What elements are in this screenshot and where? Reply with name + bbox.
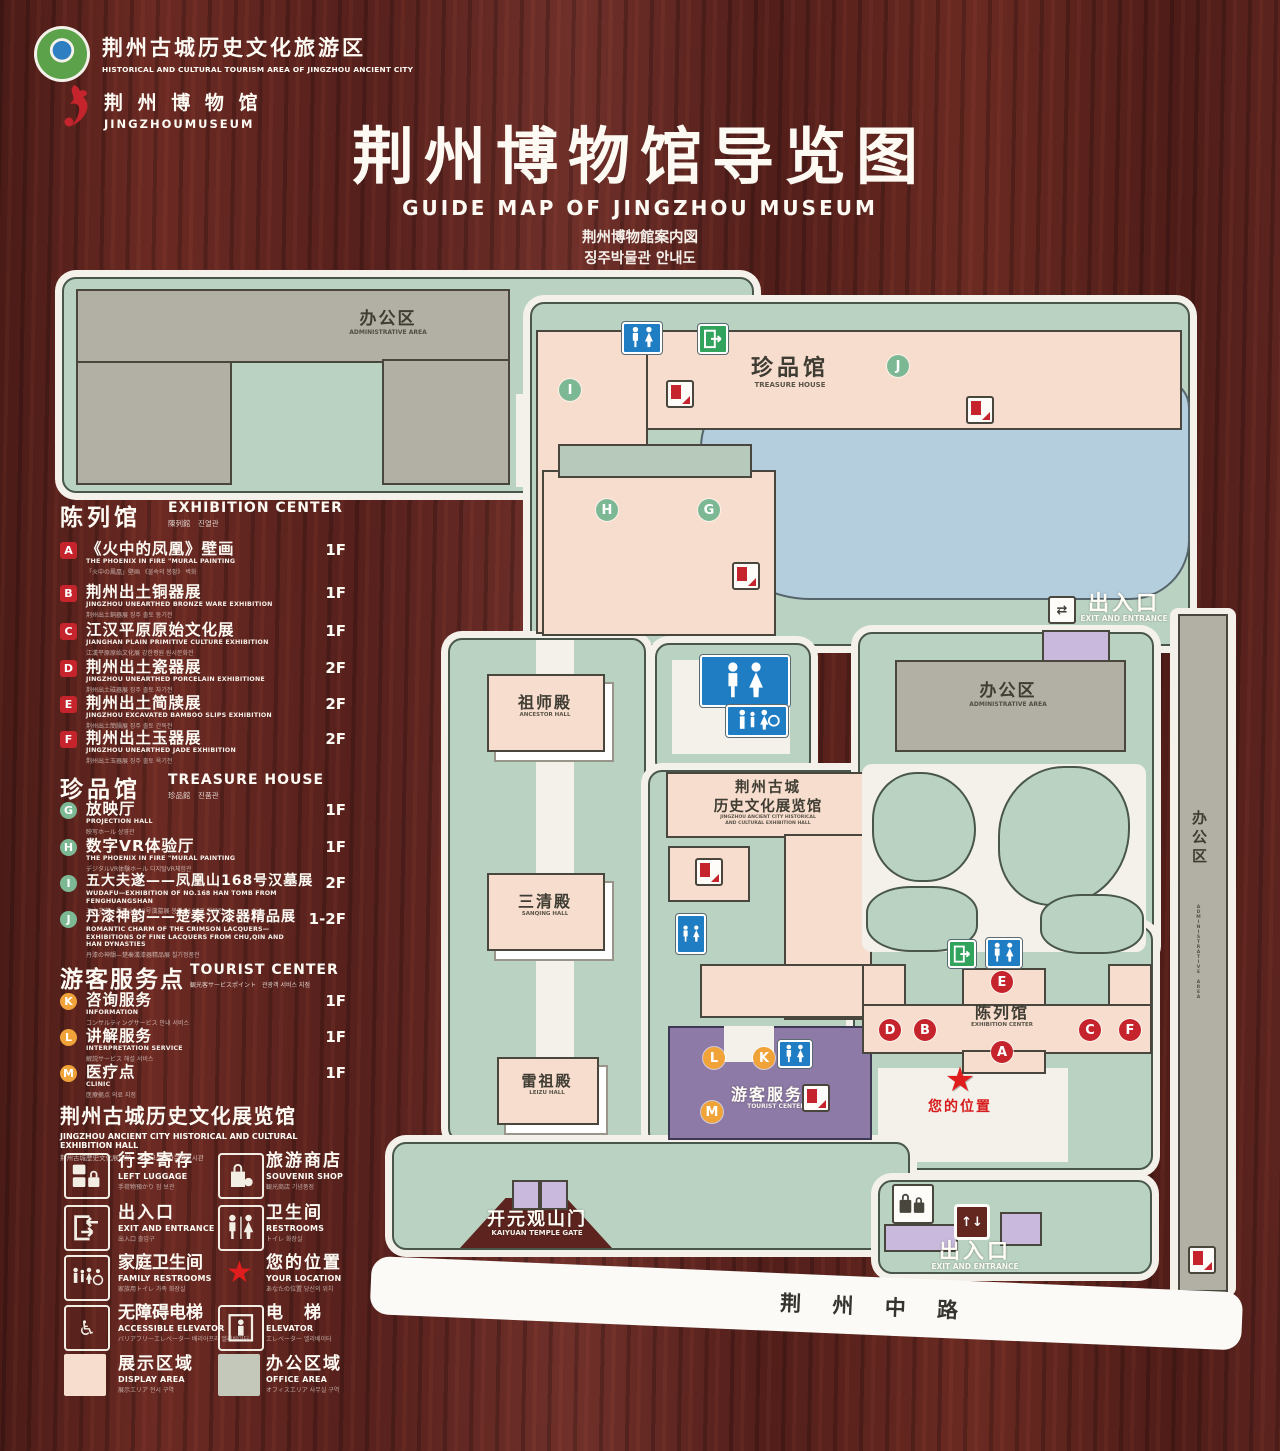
leizu-hall-label: 雷祖殿 LEIZU HALL xyxy=(521,1072,572,1097)
treasure-house-gh-block xyxy=(542,470,776,636)
map-marker-b: B xyxy=(914,1019,936,1041)
display-area-swatch xyxy=(64,1354,106,1396)
treasure-house-label: 珍品馆 TREASURE HOUSE xyxy=(751,356,829,389)
elevator-icon xyxy=(218,1305,264,1351)
legend-exit-en: EXIT AND ENTRANCE xyxy=(118,1224,215,1233)
restroom-icon-central xyxy=(700,655,790,707)
legend-item-k: K 咨询服务 INFORMATION コンサルティングサービス 안내 서비스 1… xyxy=(60,992,352,1027)
legend-item-l: L 讲解服务 INTERPRETATION SERVICE 解説サービス 해설 … xyxy=(60,1028,352,1063)
plot-south-gate xyxy=(392,1142,910,1250)
legend-floor-f: 2F xyxy=(325,730,346,748)
legend-badge-h: H xyxy=(60,839,77,856)
legend-office-area-en: OFFICE AREA xyxy=(266,1375,342,1384)
legend-floor-m: 1F xyxy=(325,1064,346,1082)
museum-logo-phoenix xyxy=(52,84,96,128)
legend-item-j: J 丹漆神韵——楚秦汉漆器精品展 ROMANTIC CHARM OF THE C… xyxy=(60,910,352,959)
legend-floor-j: 1-2F xyxy=(309,910,346,928)
legend-display-area-en: DISPLAY AREA xyxy=(118,1375,194,1384)
gate-label: 开元观山门 KAIYUAN TEMPLE GATE xyxy=(487,1210,587,1237)
restrooms-icon xyxy=(218,1205,264,1251)
legend-badge-l: L xyxy=(60,1029,77,1046)
map-marker-l: L xyxy=(703,1047,725,1069)
office-area-swatch xyxy=(218,1354,260,1396)
map-marker-m: M xyxy=(701,1101,723,1123)
legend-section-exhibition-header: 陈列馆 xyxy=(60,498,141,532)
exit-entrance-icon xyxy=(64,1205,110,1251)
legend-restrooms-en: RESTROOMS xyxy=(266,1224,324,1233)
legend-display-area-cn: 展示区域 xyxy=(118,1356,194,1373)
legend-family-en: FAMILY RESTROOMS xyxy=(118,1274,212,1283)
legend-item-d: D 荆州出土瓷器展 JINGZHOU UNEARTHED PORCELAIN E… xyxy=(60,659,352,694)
exit-se-icon: ↑↓ xyxy=(954,1204,990,1240)
legend-badge-d: D xyxy=(60,660,77,677)
road-label: 荆 州 中 路 xyxy=(780,1287,971,1325)
exit-icon-treasure xyxy=(698,324,728,354)
map-marker-g: G xyxy=(698,499,720,521)
legend-souvenir-cn: 旅游商店 xyxy=(266,1153,343,1170)
office-nw-label: 办公区 ADMINISTRATIVE AREA xyxy=(349,310,426,336)
map-marker-a: A xyxy=(991,1041,1013,1063)
legend-section-tourist-header: 游客服务点 xyxy=(60,960,185,994)
legend-section-tourist-title-sub: 観光客サービスポイント 관광객 서비스 지점 xyxy=(190,980,339,989)
legend-section-exhibition-title-sub: 陳列館 진열관 xyxy=(168,518,343,529)
legend-floor-h: 1F xyxy=(325,838,346,856)
family-restroom-icon-central xyxy=(726,705,788,737)
legend-badge-e: E xyxy=(60,696,77,713)
legend-section-tourist-title-cn: 游客服务点 xyxy=(60,967,185,993)
legend-item-a: A 《火中的凤凰》壁画 THE PHOENIX IN FIRE "MURAL P… xyxy=(60,541,352,576)
legend-floor-c: 1F xyxy=(325,622,346,640)
elevator-icon-treasure-2 xyxy=(966,396,994,424)
legend-floor-a: 1F xyxy=(325,541,346,559)
legend-section-exhibition-title-cn: 陈列馆 xyxy=(60,505,141,531)
map-marker-d: D xyxy=(879,1019,901,1041)
your-location-label: 您的位置 xyxy=(928,1096,992,1116)
legend-family-cn: 家庭卫生间 xyxy=(118,1255,212,1272)
exhibition-hall-bottom xyxy=(700,964,872,1018)
legend-badge-b: B xyxy=(60,585,77,602)
legend-floor-e: 2F xyxy=(325,695,346,713)
exit-ne-gate xyxy=(1042,630,1110,662)
legend-badge-k: K xyxy=(60,993,77,1010)
legend-floor-i: 2F xyxy=(325,874,346,892)
restroom-icon-exhibition-hall xyxy=(676,914,706,954)
legend-elevator-cn: 电 梯 xyxy=(266,1305,332,1322)
treasure-house-courtyard xyxy=(558,444,752,478)
office-strip-label-en: ADMINISTRATIVE AREA xyxy=(1196,905,1201,1000)
legend-souvenir-en: SOUVENIR SHOP xyxy=(266,1172,343,1181)
office-nw-right xyxy=(382,359,510,485)
legend-badge-g: G xyxy=(60,802,77,819)
legend-item-h: H 数字VR体验厅 THE PHOENIX IN FIRE "MURAL PAI… xyxy=(60,838,352,873)
legend-section-tourist-title-en: TOURIST CENTER xyxy=(190,962,339,978)
legend-badge-i: I xyxy=(60,875,77,892)
legend-item-e: E 荆州出土简牍展 JINGZHOU EXCAVATED BAMBOO SLIP… xyxy=(60,695,352,730)
legend-section-treasure-header: 珍品馆 xyxy=(60,770,141,804)
museum-name-cn: 荆 州 博 物 馆 xyxy=(104,88,261,115)
legend-luggage-cn: 行李寄存 xyxy=(118,1153,194,1170)
legend-item-b: B 荆州出土铜器展 JINGZHOU UNEARTHED BRONZE WARE… xyxy=(60,584,352,619)
museum-name-en: JINGZHOUMUSEUM xyxy=(104,117,261,131)
elevator-icon-tourist xyxy=(802,1084,830,1112)
left-luggage-icon xyxy=(64,1153,110,1199)
map-marker-i: I xyxy=(559,379,581,401)
restroom-icon-display xyxy=(986,938,1022,968)
exit-ne-icon: ⇄ xyxy=(1048,596,1076,624)
your-location-legend-icon: ★ xyxy=(226,1258,253,1288)
map-marker-e: E xyxy=(991,971,1013,993)
office-strip-building xyxy=(1178,614,1228,1292)
exhibition-hall-label: 荆州古城 历史文化展览馆 JINGZHOU ANCIENT CITY HISTO… xyxy=(714,778,823,826)
tourism-area-logo-emblem xyxy=(37,29,87,79)
tourism-area-logo xyxy=(34,26,90,82)
legend-restrooms-cn: 卫生间 xyxy=(266,1205,324,1222)
legend-elevator-en: ELEVATOR xyxy=(266,1324,332,1333)
office-strip-label: 办公区 xyxy=(1189,810,1210,867)
ancestor-hall-label: 祖师殿 ANCESTOR HALL xyxy=(518,694,572,719)
elevator-icon-treasure-1 xyxy=(666,380,694,408)
family-restrooms-icon xyxy=(64,1255,110,1301)
legend-floor-g: 1F xyxy=(325,801,346,819)
sanqing-hall-label: 三清殿 SANQING HALL xyxy=(518,893,572,918)
legend-location-cn: 您的位置 xyxy=(266,1255,342,1272)
map-marker-c: C xyxy=(1079,1019,1101,1041)
legend: 陈列馆 EXHIBITION CENTER 陳列館 진열관 A 《火中的凤凰》壁… xyxy=(60,498,352,1448)
display-hall-label: 陈列馆 EXHIBITION CENTER xyxy=(971,1004,1033,1029)
accessible-elevator-icon: ♿ xyxy=(64,1305,110,1351)
tourism-area-name-cn: 荆州古城历史文化旅游区 xyxy=(102,32,413,62)
legend-item-c: C 江汉平原原始文化展 JIANGHAN PLAIN PRIMITIVE CUL… xyxy=(60,622,352,657)
your-location-star: ★ xyxy=(945,1063,975,1097)
legend-luggage-en: LEFT LUGGAGE xyxy=(118,1172,194,1181)
office-nw-top xyxy=(76,289,510,363)
legend-exit-cn: 出入口 xyxy=(118,1205,215,1222)
legend-badge-f: F xyxy=(60,731,77,748)
souvenir-shop-icon xyxy=(218,1153,264,1199)
elevator-icon-treasure-3 xyxy=(732,562,760,590)
legend-item-g: G 放映厅 PROJECTION HALL 映写ホール 상영관 1F xyxy=(60,801,352,836)
elevator-icon-exhibition-hall xyxy=(695,858,723,886)
map-marker-h: H xyxy=(596,499,618,521)
map-marker-k: K xyxy=(753,1047,775,1069)
legend-floor-b: 1F xyxy=(325,584,346,602)
legend-badge-a: A xyxy=(60,542,77,559)
restroom-icon-tourist xyxy=(778,1040,812,1068)
page-title-jp: 荆州博物館案内図 xyxy=(250,226,1030,247)
elevator-icon-strip xyxy=(1188,1246,1216,1274)
office-east-label: 办公区 ADMINISTRATIVE AREA xyxy=(969,682,1046,708)
legend-section-treasure-title-sub: 珍品館 진품관 xyxy=(168,790,324,801)
exit-se-label: 出入口 EXIT AND ENTRANCE xyxy=(931,1240,1018,1271)
legend-badge-j: J xyxy=(60,911,77,928)
legend-badge-m: M xyxy=(60,1065,77,1082)
map-marker-f: F xyxy=(1119,1019,1141,1041)
gate-pillar-left xyxy=(512,1180,540,1210)
legend-floor-l: 1F xyxy=(325,1028,346,1046)
restroom-icon-treasure xyxy=(622,322,662,354)
tourism-area-name-en: HISTORICAL AND CULTURAL TOURISM AREA OF … xyxy=(102,65,413,74)
legend-office-area-cn: 办公区域 xyxy=(266,1356,342,1373)
legend-item-f: F 荆州出土玉器展 JINGZHOU UNEARTHED JADE EXHIBI… xyxy=(60,730,352,765)
left-luggage-icon-se xyxy=(892,1184,934,1224)
guide-map-poster: 荆州古城历史文化旅游区 HISTORICAL AND CULTURAL TOUR… xyxy=(0,0,1280,1451)
exit-ne-label: 出入口 EXIT AND ENTRANCE xyxy=(1080,592,1167,623)
page-title-kr: 징주박물관 안내도 xyxy=(250,247,1030,268)
legend-floor-k: 1F xyxy=(325,992,346,1010)
garden-bed-1 xyxy=(872,772,976,882)
legend-section-exhibition-title-en: EXHIBITION CENTER xyxy=(168,500,343,516)
page-title: 荆州博物馆导览图 xyxy=(250,106,1030,196)
exit-icon-display xyxy=(948,940,976,968)
page-title-en: GUIDE MAP OF JINGZHOU MUSEUM xyxy=(250,196,1030,220)
gate-pillar-right xyxy=(540,1180,568,1210)
garden-bed-4 xyxy=(1040,894,1144,954)
legend-location-en: YOUR LOCATION xyxy=(266,1274,342,1283)
legend-badge-c: C xyxy=(60,623,77,640)
legend-floor-d: 2F xyxy=(325,659,346,677)
legend-section-treasure-title-en: TREASURE HOUSE xyxy=(168,772,324,788)
map-marker-j: J xyxy=(887,355,909,377)
legend-item-m: M 医疗点 CLINIC 医療拠点 의료 지점 1F xyxy=(60,1064,352,1099)
